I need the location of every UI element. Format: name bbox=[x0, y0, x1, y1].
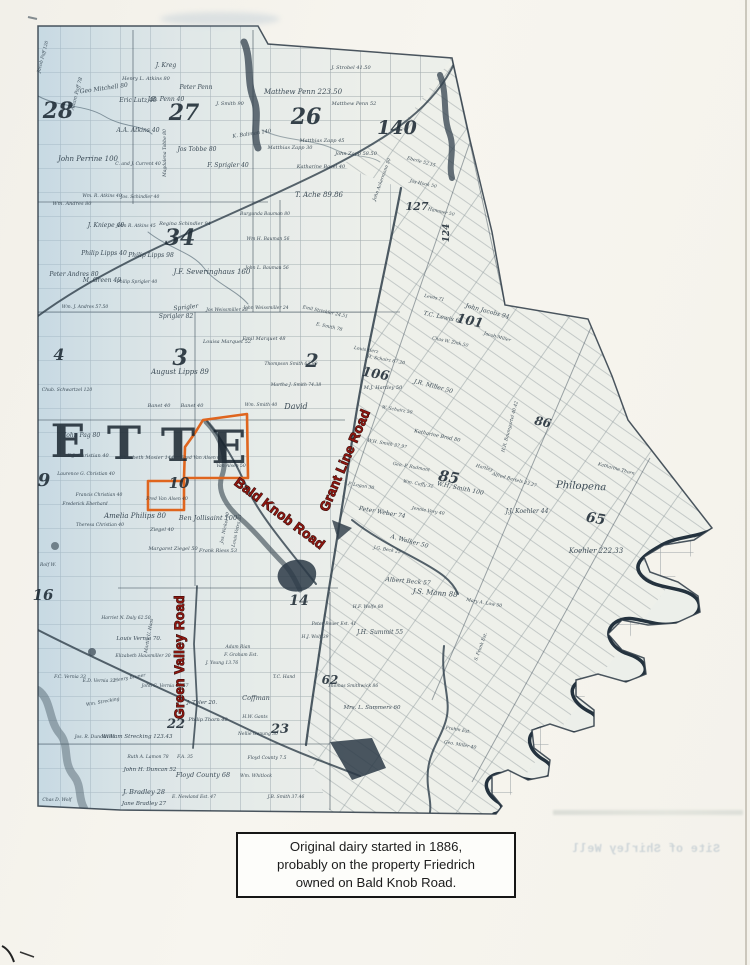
parcel-owner-label: Magdalena Tobbe 80 bbox=[162, 129, 168, 178]
parcel-owner-label: Elizabeth Hausmiller 30 bbox=[114, 653, 170, 659]
parcel-owner-label: Peter Penn bbox=[178, 84, 212, 91]
parcel-owner-label: John R. Atkins 45 bbox=[115, 223, 156, 229]
section-number: 14 bbox=[289, 593, 308, 609]
parcel-owner-label: F. Graham Est. bbox=[223, 652, 258, 658]
parcel-owner-label: M. Green 40 bbox=[82, 277, 121, 284]
bleed-smudge-line bbox=[553, 810, 743, 815]
caption-line: Original dairy started in 1886, bbox=[290, 838, 462, 856]
parcel-owner-label: Sprigler 82 bbox=[159, 313, 194, 320]
parcel-owner-label: H.W. Gants bbox=[241, 714, 268, 720]
section-number: 9 bbox=[38, 470, 51, 491]
parcel-owner-label: Banet 40 bbox=[147, 403, 172, 409]
scan-blemishes bbox=[2, 17, 37, 962]
caption-line: probably on the property Friedrich bbox=[277, 856, 475, 874]
parcel-owner-label: Philip Lipps 40 bbox=[80, 250, 127, 257]
parcel-owner-label: J. Smith 90 bbox=[215, 101, 245, 107]
parcel-owner-label: Margaret Ziegel 50 bbox=[147, 546, 198, 552]
grove-dot bbox=[88, 648, 96, 656]
parcel-owner-label: John Perrine 100 bbox=[56, 155, 119, 163]
parcel-owner-label: Jane Bradley 27 bbox=[121, 801, 167, 807]
parcel-owner-label: J.B. Smith 37.46 bbox=[267, 794, 305, 800]
parcel-owner-label: Elizabeth Mosier 144 bbox=[119, 455, 174, 461]
parcel-owner-label: Van Alsen 50 bbox=[216, 463, 246, 469]
parcel-owner-label: David bbox=[283, 402, 307, 411]
parcel-owner-label: Thomas Smithwick 86 bbox=[328, 683, 379, 689]
parcel-owner-label: Wm. Whitlock bbox=[240, 773, 272, 779]
parcel-owner-label: J. Tyler 20. bbox=[186, 700, 217, 706]
parcel-owner-label: H.J. Wolf 39 bbox=[301, 634, 329, 640]
parcel-owner-label: Nellie Genung 30 bbox=[237, 731, 278, 737]
parcel-owner-label: Matthew Penn 52 bbox=[331, 101, 377, 107]
parcel-owner-label: Philip Sprigler 40 bbox=[116, 279, 158, 285]
section-number: 124 bbox=[442, 224, 452, 243]
parcel-owner-label: John Zapp 58.50 bbox=[334, 151, 378, 157]
parcel-owner-label: John Weissmiller 24 bbox=[242, 305, 288, 311]
road-annotation-label: Green Valley Road bbox=[172, 595, 187, 719]
parcel-owner-label: Wm. J. Andres 57.50 bbox=[62, 304, 109, 310]
parcel-owner-label: Matthias Zapp 45 bbox=[299, 138, 345, 144]
parcel-owner-label: T. Ache 89.86 bbox=[295, 191, 344, 199]
parcel-owner-label: Fred Van Alsen 61 bbox=[180, 455, 223, 461]
parcel-owner-label: Wm. Andres 80 bbox=[53, 201, 93, 207]
section-number: 27 bbox=[168, 100, 200, 126]
parcel-owner-label: Mrs. L. Summers 60 bbox=[343, 705, 401, 711]
parcel-owner-label: F.A. 35 bbox=[176, 754, 193, 760]
caption-box: Original dairy started in 1886, probably… bbox=[236, 832, 516, 898]
parcel-owner-label: C. and J. Current 40 bbox=[115, 161, 161, 167]
caption-line: owned on Bald Knob Road. bbox=[296, 874, 457, 892]
parcel-owner-label: E.J. Christian 40 bbox=[66, 453, 109, 459]
parcel-owner-label: Henry L. Atkins 80 bbox=[121, 76, 171, 82]
parcel-owner-label: Chub. Schwartzel 120 bbox=[42, 387, 93, 393]
bleed-through-text: Site of Shirley Well bbox=[548, 843, 744, 856]
parcel-owner-label: Chas D. Wolf bbox=[42, 797, 73, 803]
parcel-owner-label: Frederick Eberhard bbox=[61, 501, 107, 507]
grove-dot bbox=[51, 542, 59, 550]
parcel-owner-label: A.A. Atkins 40 bbox=[115, 127, 159, 134]
parcel-owner-label: Wm. R. Atkins 40 bbox=[82, 193, 122, 199]
parcel-owner-label: August Lipps 89 bbox=[150, 368, 209, 376]
section-number: 10 bbox=[169, 474, 190, 492]
scanned-page: ETTE 28272634324910161401271241011068586… bbox=[0, 0, 750, 965]
section-number: 4 bbox=[53, 345, 64, 364]
section-number: 26 bbox=[290, 104, 322, 130]
parcel-owner-label: J. Strobel 41.50 bbox=[330, 65, 371, 71]
parcel-owner-label: J. Bradley 28 bbox=[121, 788, 165, 796]
parcel-owner-label: Fred Van Alsen 40 bbox=[145, 496, 188, 502]
plat-map: ETTE 28272634324910161401271241011068586… bbox=[0, 0, 750, 965]
map-body: ETTE 28272634324910161401271241011068586… bbox=[33, 26, 718, 816]
parcel-owner-label: Frank Riess 53 bbox=[198, 548, 237, 554]
parcel-owner-label: Koehler 222.33 bbox=[568, 547, 624, 555]
parcel-owner-label: John L. Bauman 56 bbox=[244, 265, 289, 271]
parcel-owner-label: Adam Rian bbox=[225, 644, 251, 650]
parcel-owner-label: Philip Thorn 40 bbox=[187, 717, 228, 723]
parcel-owner-label: T.C. Hand bbox=[273, 674, 295, 680]
parcel-owner-label: Burgunda Bauman 80 bbox=[239, 211, 290, 217]
parcel-owner-label: Matthias Zapp 30 bbox=[267, 145, 314, 151]
parcel-owner-label: Floyd County 7.5 bbox=[246, 755, 286, 761]
parcel-owner-label: John Pag 80 bbox=[62, 432, 101, 439]
section-number: 140 bbox=[377, 117, 417, 139]
parcel-owner-label: Harriet N. Daly 62.50 bbox=[100, 615, 150, 621]
parcel-owner-label: J.F. Severinghaus 160 bbox=[172, 268, 251, 276]
parcel-owner-label: H.F. Wolfe 60 bbox=[352, 604, 384, 610]
parcel-owner-label: Louis Vernia 70. bbox=[115, 636, 162, 642]
parcel-owner-label: F.C. Vernia 33 bbox=[53, 674, 86, 680]
parcel-owner-label: Emil Marquet 48 bbox=[241, 336, 285, 342]
section-number: 34 bbox=[165, 225, 196, 251]
parcel-owner-label: Rolf W. bbox=[39, 562, 56, 568]
section-number: 28 bbox=[42, 98, 74, 124]
parcel-owner-label: Ruth A. Lamon 78 bbox=[126, 754, 168, 760]
parcel-owner-label: Laurence G. Christian 40 bbox=[56, 471, 115, 477]
parcel-owner-label: Philip Lipps 98 bbox=[127, 252, 174, 259]
parcel-owner-label: Coffman bbox=[242, 694, 270, 702]
parcel-owner-label: M.J. Hartley 50 bbox=[363, 385, 403, 391]
township-letter: T bbox=[161, 418, 195, 472]
township-letter: E bbox=[50, 414, 85, 468]
parcel-owner-label: Amelia Philips 80 bbox=[103, 512, 166, 520]
parcel-owner-label: Wm H. Bauman 56 bbox=[246, 236, 289, 242]
top-edge-smudge bbox=[160, 12, 280, 26]
scan-right-edge bbox=[745, 0, 747, 965]
parcel-owner-label: John H. Duncan 52 bbox=[123, 767, 177, 773]
section-number: 65 bbox=[585, 509, 607, 528]
parcel-owner-label: F. Sprigler 40 bbox=[206, 162, 249, 169]
parcel-owner-label: Matthew Penn 223.50 bbox=[263, 88, 343, 96]
parcel-owner-label: Katharine Basel 40 bbox=[296, 164, 346, 170]
parcel-owner-label: Banet 40 bbox=[180, 403, 205, 409]
parcel-owner-label: J.J. Koehler 44 bbox=[504, 508, 549, 515]
parcel-owner-label: Peter Bauer Est. 41 bbox=[311, 621, 357, 627]
section-number: 2 bbox=[304, 350, 318, 372]
parcel-owner-label: Jos. Schindler 40 bbox=[120, 194, 160, 200]
parcel-owner-label: J.B. Penn 40 bbox=[146, 96, 185, 103]
section-number: 127 bbox=[406, 200, 429, 213]
parcel-owner-label: Thompson Smith 63.90 bbox=[265, 361, 318, 367]
parcel-owner-label: Floyd County 68 bbox=[175, 771, 230, 779]
parcel-owner-label: J.H. Summit 55 bbox=[355, 629, 403, 636]
parcel-owner-label: J. Young 13.76 bbox=[205, 660, 239, 666]
parcel-owner-label: Wm. Smith 40 bbox=[245, 402, 278, 408]
parcel-owner-label: Francis Christian 40 bbox=[75, 492, 123, 498]
parcel-owner-label: E.D. Vernia 32 bbox=[82, 678, 116, 684]
parcel-owner-label: E. Newland Est. 47 bbox=[171, 794, 216, 800]
parcel-owner-label: Jos Weissmiller 28 bbox=[205, 307, 248, 313]
parcel-owner-label: Jos Tobbe 80 bbox=[176, 146, 217, 153]
parcel-owner-label: Theresa Christian 40 bbox=[76, 522, 124, 528]
township-letter: T bbox=[107, 416, 141, 470]
parcel-owner-label: Martha J. Smith 74.38 bbox=[270, 382, 322, 388]
parcel-owner-label: Ziegel 40 bbox=[149, 527, 175, 533]
parcel-owner-label: Jos. R. Duncan 40 bbox=[74, 734, 116, 740]
parcel-owner-label: J. Kreg bbox=[154, 62, 177, 69]
section-number: 16 bbox=[33, 586, 54, 604]
parcel-owner-label: Regina Schindler 94 bbox=[158, 221, 211, 227]
